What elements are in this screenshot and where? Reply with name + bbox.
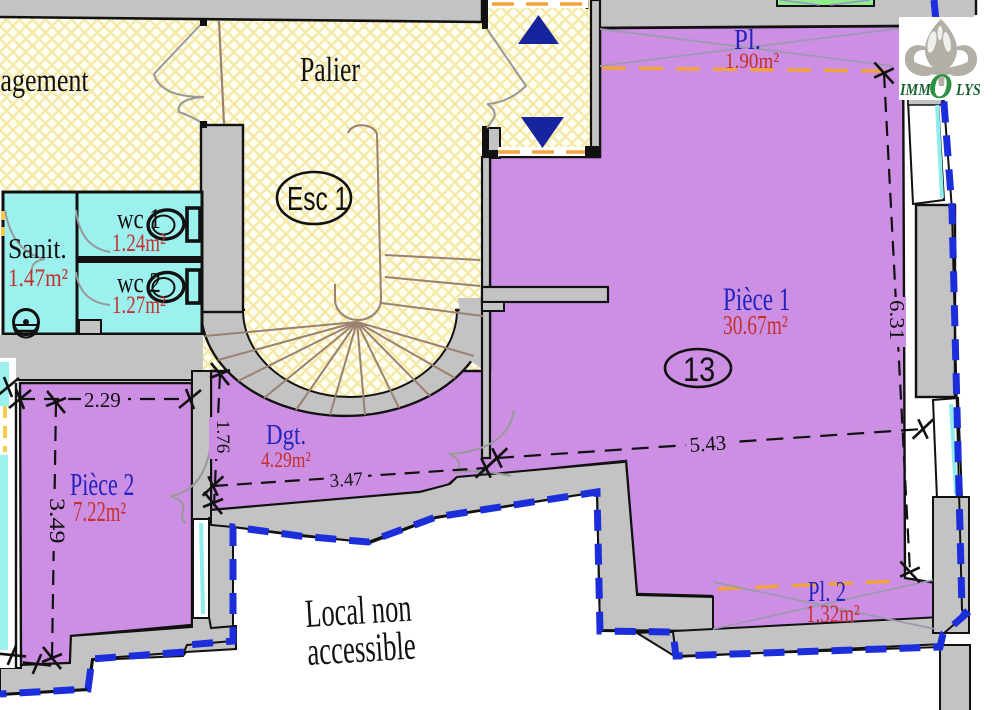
svg-text:1.76: 1.76 bbox=[212, 420, 233, 453]
svg-text:1.24m²: 1.24m² bbox=[112, 228, 166, 256]
svg-text:4.29m²: 4.29m² bbox=[261, 448, 311, 472]
svg-text:6.31: 6.31 bbox=[885, 300, 908, 340]
svg-text:30.67m²: 30.67m² bbox=[723, 311, 788, 341]
svg-text:Dgt.: Dgt. bbox=[266, 419, 306, 451]
svg-text:Esc 1: Esc 1 bbox=[287, 182, 348, 218]
svg-text:Dégagement: Dégagement bbox=[0, 63, 89, 99]
svg-text:O: O bbox=[929, 66, 952, 106]
svg-text:3.47: 3.47 bbox=[329, 469, 364, 492]
svg-text:IMM: IMM bbox=[899, 81, 932, 99]
svg-text:Sanit.: Sanit. bbox=[8, 233, 67, 265]
svg-text:1.32m²: 1.32m² bbox=[806, 599, 860, 627]
svg-text:Palier: Palier bbox=[300, 50, 360, 89]
svg-text:3.49: 3.49 bbox=[45, 498, 69, 543]
svg-text:accessible: accessible bbox=[306, 624, 417, 674]
svg-text:1.27m²: 1.27m² bbox=[112, 290, 166, 318]
svg-text:5.43: 5.43 bbox=[689, 430, 727, 457]
svg-text:13: 13 bbox=[683, 350, 715, 389]
svg-text:LYS: LYS bbox=[955, 81, 981, 99]
svg-text:1.90m²: 1.90m² bbox=[725, 50, 779, 73]
svg-text:1.47m²: 1.47m² bbox=[8, 264, 68, 292]
svg-text:7.22m²: 7.22m² bbox=[73, 498, 126, 529]
svg-text:2.29: 2.29 bbox=[84, 388, 121, 412]
